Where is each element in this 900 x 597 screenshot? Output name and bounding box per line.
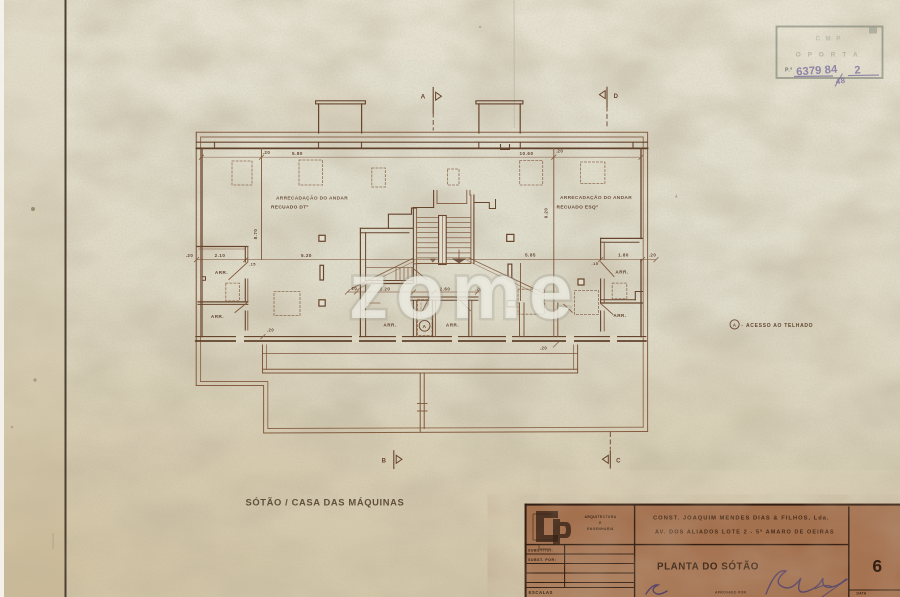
- svg-text:ACESSO AO TELHADO: ACESSO AO TELHADO: [746, 323, 813, 329]
- svg-text:10.60: 10.60: [520, 151, 534, 156]
- svg-text:.20: .20: [186, 253, 194, 258]
- svg-text:C: C: [616, 458, 621, 464]
- svg-text:RECUADO ESQº: RECUADO ESQº: [557, 205, 599, 211]
- svg-text:2.10: 2.10: [215, 253, 226, 258]
- svg-text:SÓTÃO / CASA DAS MÁQUINAS: SÓTÃO / CASA DAS MÁQUINAS: [246, 497, 405, 508]
- svg-text:.20: .20: [263, 150, 271, 155]
- svg-text:1.80: 1.80: [618, 253, 629, 258]
- svg-text:.15: .15: [591, 261, 598, 266]
- svg-text:⅄: ⅄: [674, 194, 678, 199]
- svg-text:B: B: [382, 459, 387, 465]
- svg-text:D: D: [614, 94, 619, 100]
- svg-text:.20: .20: [556, 149, 564, 154]
- svg-text:.20: .20: [649, 253, 657, 258]
- svg-text:ARR.: ARR.: [615, 270, 628, 275]
- svg-text:C M P: C M P: [816, 37, 843, 43]
- svg-text:-: -: [742, 323, 744, 328]
- svg-text:ARR.: ARR.: [215, 270, 228, 275]
- svg-text:RECUADO DTº: RECUADO DTº: [271, 205, 309, 211]
- svg-text:A: A: [733, 322, 737, 327]
- svg-text:ARR.: ARR.: [211, 314, 224, 319]
- svg-text:.20: .20: [540, 346, 547, 351]
- svg-text:zome: zome: [349, 247, 580, 335]
- svg-text:P.º: P.º: [785, 68, 793, 74]
- svg-text:.15: .15: [249, 261, 256, 266]
- svg-text:ARR.: ARR.: [613, 313, 626, 318]
- svg-text:O P O R T A: O P O R T A: [796, 52, 860, 59]
- svg-text:5.20: 5.20: [301, 253, 312, 258]
- svg-text:ARRECADAÇÃO DO ANDAR: ARRECADAÇÃO DO ANDAR: [560, 194, 632, 201]
- svg-text:8.70: 8.70: [253, 229, 258, 240]
- svg-text:.20: .20: [267, 328, 274, 333]
- svg-text:A: A: [421, 94, 426, 101]
- svg-text:ARRECADAÇÃO DO ANDAR: ARRECADAÇÃO DO ANDAR: [276, 195, 348, 202]
- svg-text:9.20: 9.20: [544, 208, 549, 219]
- svg-text:5.80: 5.80: [292, 151, 303, 156]
